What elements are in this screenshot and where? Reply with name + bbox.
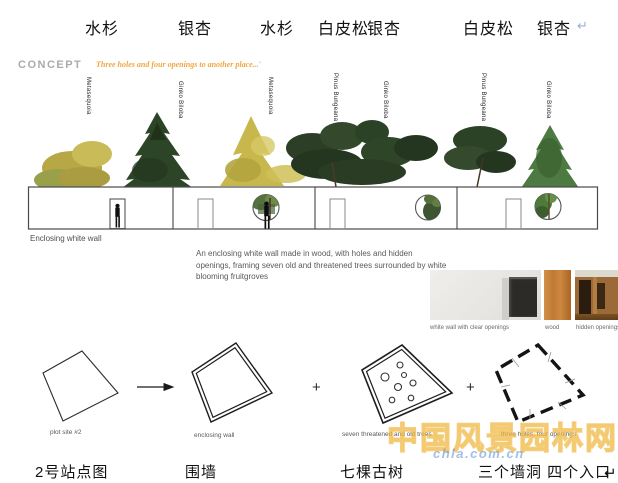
photo-ceiling <box>575 270 618 277</box>
tree-pinus-2 <box>444 126 516 187</box>
species-label-zh-4: 白皮松 <box>318 15 369 39</box>
concept-quote: Three holes and four openings to another… <box>96 60 261 69</box>
diagram-caption-3: seven threatened and old trees <box>342 431 432 438</box>
process-diagrams: + + <box>0 335 618 435</box>
enclosing-wall-elevation <box>29 187 598 229</box>
photo-dark-opening-2 <box>597 283 605 309</box>
species-label-zh-3: 水杉 <box>260 15 294 39</box>
trees-illustration <box>34 112 579 191</box>
watermark-url: chla.com.cn <box>433 446 525 461</box>
photo-floor <box>575 314 618 320</box>
diagram-enclosing-wall <box>192 343 272 422</box>
diagram-caption-zh-4: 三个墙洞 四个入口 <box>478 461 611 482</box>
plus-icon-2: + <box>466 379 475 396</box>
tree-circles <box>381 362 416 403</box>
diagram-caption-zh-1: 2号站点图 <box>35 461 108 482</box>
tree-ginko-dark-1 <box>122 112 193 188</box>
diagram-holes-openings <box>496 345 583 422</box>
diagram-caption-zh-2: 围墙 <box>185 461 217 482</box>
tree-pinus-cluster <box>286 120 438 187</box>
species-label-zh-2: 银杏 <box>178 15 212 39</box>
door-opening-4 <box>506 199 521 229</box>
material-image-wood <box>544 270 571 320</box>
diagram-seven-trees <box>362 345 452 423</box>
material-image-hidden-openings <box>575 270 618 320</box>
arrow-icon <box>137 384 173 391</box>
material-image-white-wall <box>430 270 541 320</box>
diagram-plot-site <box>43 351 118 421</box>
wall-caption: Enclosing white wall <box>30 234 102 243</box>
description-paragraph: An enclosing white wall made in wood, wi… <box>196 248 448 283</box>
species-label-zh-5: 银杏 <box>367 15 401 39</box>
wall-photo-opening <box>509 277 537 317</box>
wall-elevation-drawing <box>0 100 618 235</box>
paragraph-return-icon: ↵ <box>577 18 589 34</box>
tree-metasequoia-1 <box>34 141 112 191</box>
material-caption-3: hidden openings <box>576 325 618 331</box>
material-caption-1: white wall with clear openings <box>430 325 509 331</box>
tree-ginko-dark-2 <box>521 125 579 188</box>
diagram-caption-zh-3: 七棵古树 <box>340 461 404 482</box>
paragraph-return-icon-bottom: ↵ <box>604 464 618 482</box>
species-label-zh-6: 白皮松 <box>463 15 514 39</box>
concept-board: 水杉 银杏 水杉 白皮松 银杏 白皮松 银杏 ↵ CONCEPT Three h… <box>0 0 618 483</box>
door-opening-2 <box>198 199 213 229</box>
diagram-caption-4: three holes, four openings <box>501 431 576 438</box>
material-caption-2: wood <box>545 325 559 331</box>
species-label-zh-7: 银杏 <box>537 15 571 39</box>
plus-icon-1: + <box>312 379 321 396</box>
diagram-caption-1: plot site #2 <box>50 429 81 436</box>
concept-heading: CONCEPT <box>18 59 82 71</box>
door-opening-3 <box>330 199 345 229</box>
species-label-zh-1: 水杉 <box>85 15 119 39</box>
diagram-caption-2: enclosing wall <box>194 432 234 439</box>
wall-photo-pillar <box>502 278 509 320</box>
